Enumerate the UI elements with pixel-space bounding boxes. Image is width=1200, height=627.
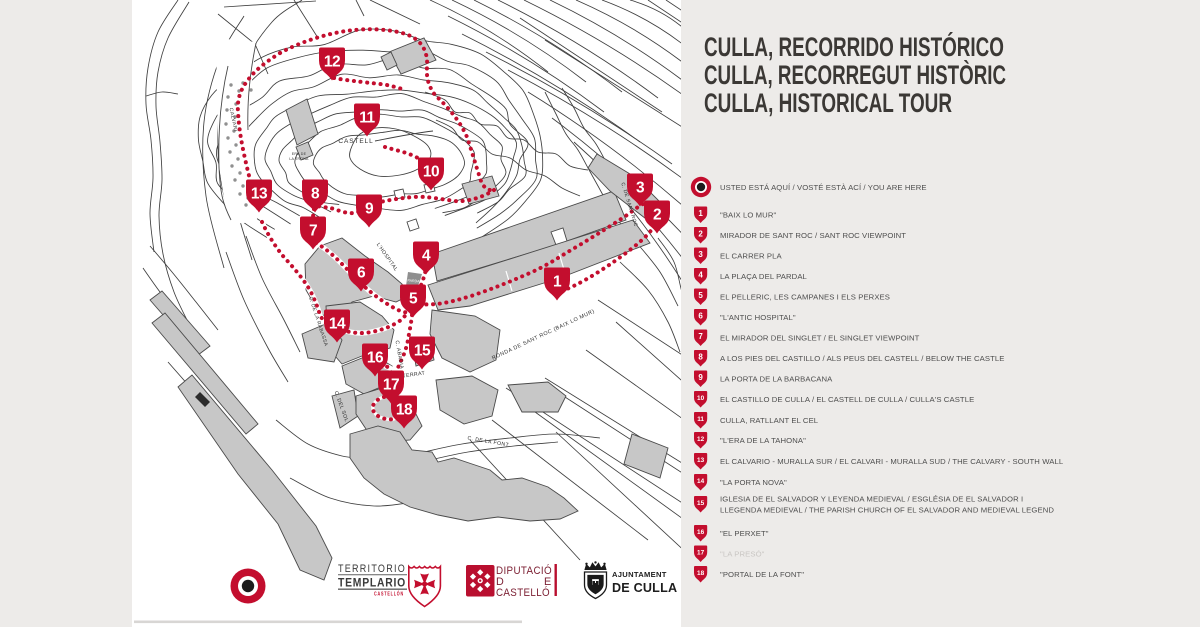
svg-text:2: 2 [653, 207, 661, 224]
svg-text:18: 18 [697, 570, 705, 577]
svg-text:5: 5 [698, 291, 703, 300]
svg-text:3: 3 [698, 250, 703, 259]
svg-text:9: 9 [365, 201, 374, 218]
svg-text:CULLA, RATLLANT EL CEL: CULLA, RATLLANT EL CEL [720, 416, 819, 425]
svg-text:TEMPLARIO: TEMPLARIO [338, 576, 406, 590]
svg-text:"BAIX LO MUR": "BAIX LO MUR" [720, 211, 776, 220]
svg-text:EL CARRER PLA: EL CARRER PLA [720, 252, 782, 261]
svg-text:13: 13 [251, 186, 268, 203]
svg-text:"EL PERXET": "EL PERXET" [720, 529, 769, 538]
svg-text:14: 14 [329, 316, 346, 333]
svg-text:11: 11 [359, 110, 375, 127]
svg-text:USTED ESTÁ AQUÍ / VOSTÉ ESTÀ A: USTED ESTÁ AQUÍ / VOSTÉ ESTÀ ACÍ / YOU A… [720, 183, 927, 192]
svg-text:CASTELL: CASTELL [338, 138, 373, 145]
svg-text:1: 1 [553, 274, 562, 291]
svg-text:16: 16 [697, 529, 705, 536]
svg-text:ERA DE: ERA DE [292, 152, 307, 156]
svg-text:AJUNTAMENT: AJUNTAMENT [612, 570, 667, 579]
svg-text:LA PLAÇA DEL PARDAL: LA PLAÇA DEL PARDAL [720, 272, 808, 281]
svg-text:LA TRONA: LA TRONA [289, 157, 309, 161]
svg-text:7: 7 [698, 332, 703, 341]
svg-text:2: 2 [698, 230, 703, 239]
svg-text:12: 12 [697, 436, 705, 443]
svg-text:4: 4 [422, 248, 431, 265]
svg-text:EL CALVARIO - MURALLA SUR / EL: EL CALVARIO - MURALLA SUR / EL CALVARI -… [720, 457, 1064, 466]
svg-text:CULLA, RECORREGUT HISTÒRIC: CULLA, RECORREGUT HISTÒRIC [704, 60, 1006, 90]
svg-text:16: 16 [367, 350, 384, 367]
svg-text:CULLA, HISTORICAL TOUR: CULLA, HISTORICAL TOUR [704, 88, 952, 118]
svg-text:"LA PRESÓ": "LA PRESÓ" [720, 550, 765, 559]
svg-text:EL MIRADOR DEL SINGLET / EL SI: EL MIRADOR DEL SINGLET / EL SINGLET VIEW… [720, 334, 920, 343]
svg-text:9: 9 [698, 373, 703, 382]
svg-text:8: 8 [698, 353, 703, 362]
svg-text:4: 4 [698, 271, 703, 280]
svg-text:A LOS PIES DEL CASTILLO / ALS: A LOS PIES DEL CASTILLO / ALS PEUS DEL C… [720, 354, 1005, 363]
svg-text:LLEGENDA MEDIEVAL / THE PARISH: LLEGENDA MEDIEVAL / THE PARISH CHURCH OF… [720, 506, 1054, 515]
svg-text:TERRITORIO: TERRITORIO [338, 563, 406, 575]
svg-text:15: 15 [697, 500, 705, 507]
svg-text:10: 10 [697, 395, 705, 402]
svg-text:"PORTAL DE LA FONT": "PORTAL DE LA FONT" [720, 570, 804, 579]
svg-text:5: 5 [409, 291, 418, 308]
svg-text:15: 15 [414, 343, 431, 360]
svg-text:8: 8 [311, 186, 320, 203]
svg-text:1: 1 [698, 209, 703, 218]
svg-text:11: 11 [697, 416, 704, 423]
svg-text:CASTELLÓ: CASTELLÓ [496, 586, 550, 599]
svg-text:6: 6 [357, 265, 366, 282]
svg-text:3: 3 [636, 180, 645, 197]
svg-text:"LA PORTA NOVA": "LA PORTA NOVA" [720, 478, 787, 487]
svg-text:DE CULLA: DE CULLA [612, 581, 677, 595]
svg-text:17: 17 [383, 377, 399, 394]
svg-text:14: 14 [697, 478, 705, 485]
svg-text:LA PORTA DE LA BARBACANA: LA PORTA DE LA BARBACANA [720, 375, 833, 384]
svg-text:12: 12 [324, 54, 340, 71]
svg-text:13: 13 [697, 457, 705, 464]
svg-text:MIRADOR DE SANT ROC / SANT ROC: MIRADOR DE SANT ROC / SANT ROC VIEWPOINT [720, 231, 906, 240]
svg-text:"L'ANTIC HOSPITAL": "L'ANTIC HOSPITAL" [720, 313, 796, 322]
svg-text:6: 6 [698, 312, 703, 321]
svg-text:"L'ERA DE LA TAHONA": "L'ERA DE LA TAHONA" [720, 436, 806, 445]
svg-text:EL CASTILLO DE CULLA / EL CAST: EL CASTILLO DE CULLA / EL CASTELL DE CUL… [720, 395, 974, 404]
svg-text:CULLA, RECORRIDO HISTÓRICO: CULLA, RECORRIDO HISTÓRICO [704, 32, 1004, 62]
svg-text:18: 18 [396, 402, 413, 419]
svg-text:EL PELLERIC, LES CAMPANES I EL: EL PELLERIC, LES CAMPANES I ELS PERXES [720, 293, 890, 302]
svg-text:10: 10 [423, 164, 439, 181]
svg-text:17: 17 [697, 549, 705, 556]
svg-text:CASTELLÓN: CASTELLÓN [374, 590, 404, 598]
svg-text:7: 7 [309, 223, 317, 240]
svg-text:IGLESIA DE EL SALVADOR Y LEYEN: IGLESIA DE EL SALVADOR Y LEYENDA MEDIEVA… [720, 495, 1023, 504]
